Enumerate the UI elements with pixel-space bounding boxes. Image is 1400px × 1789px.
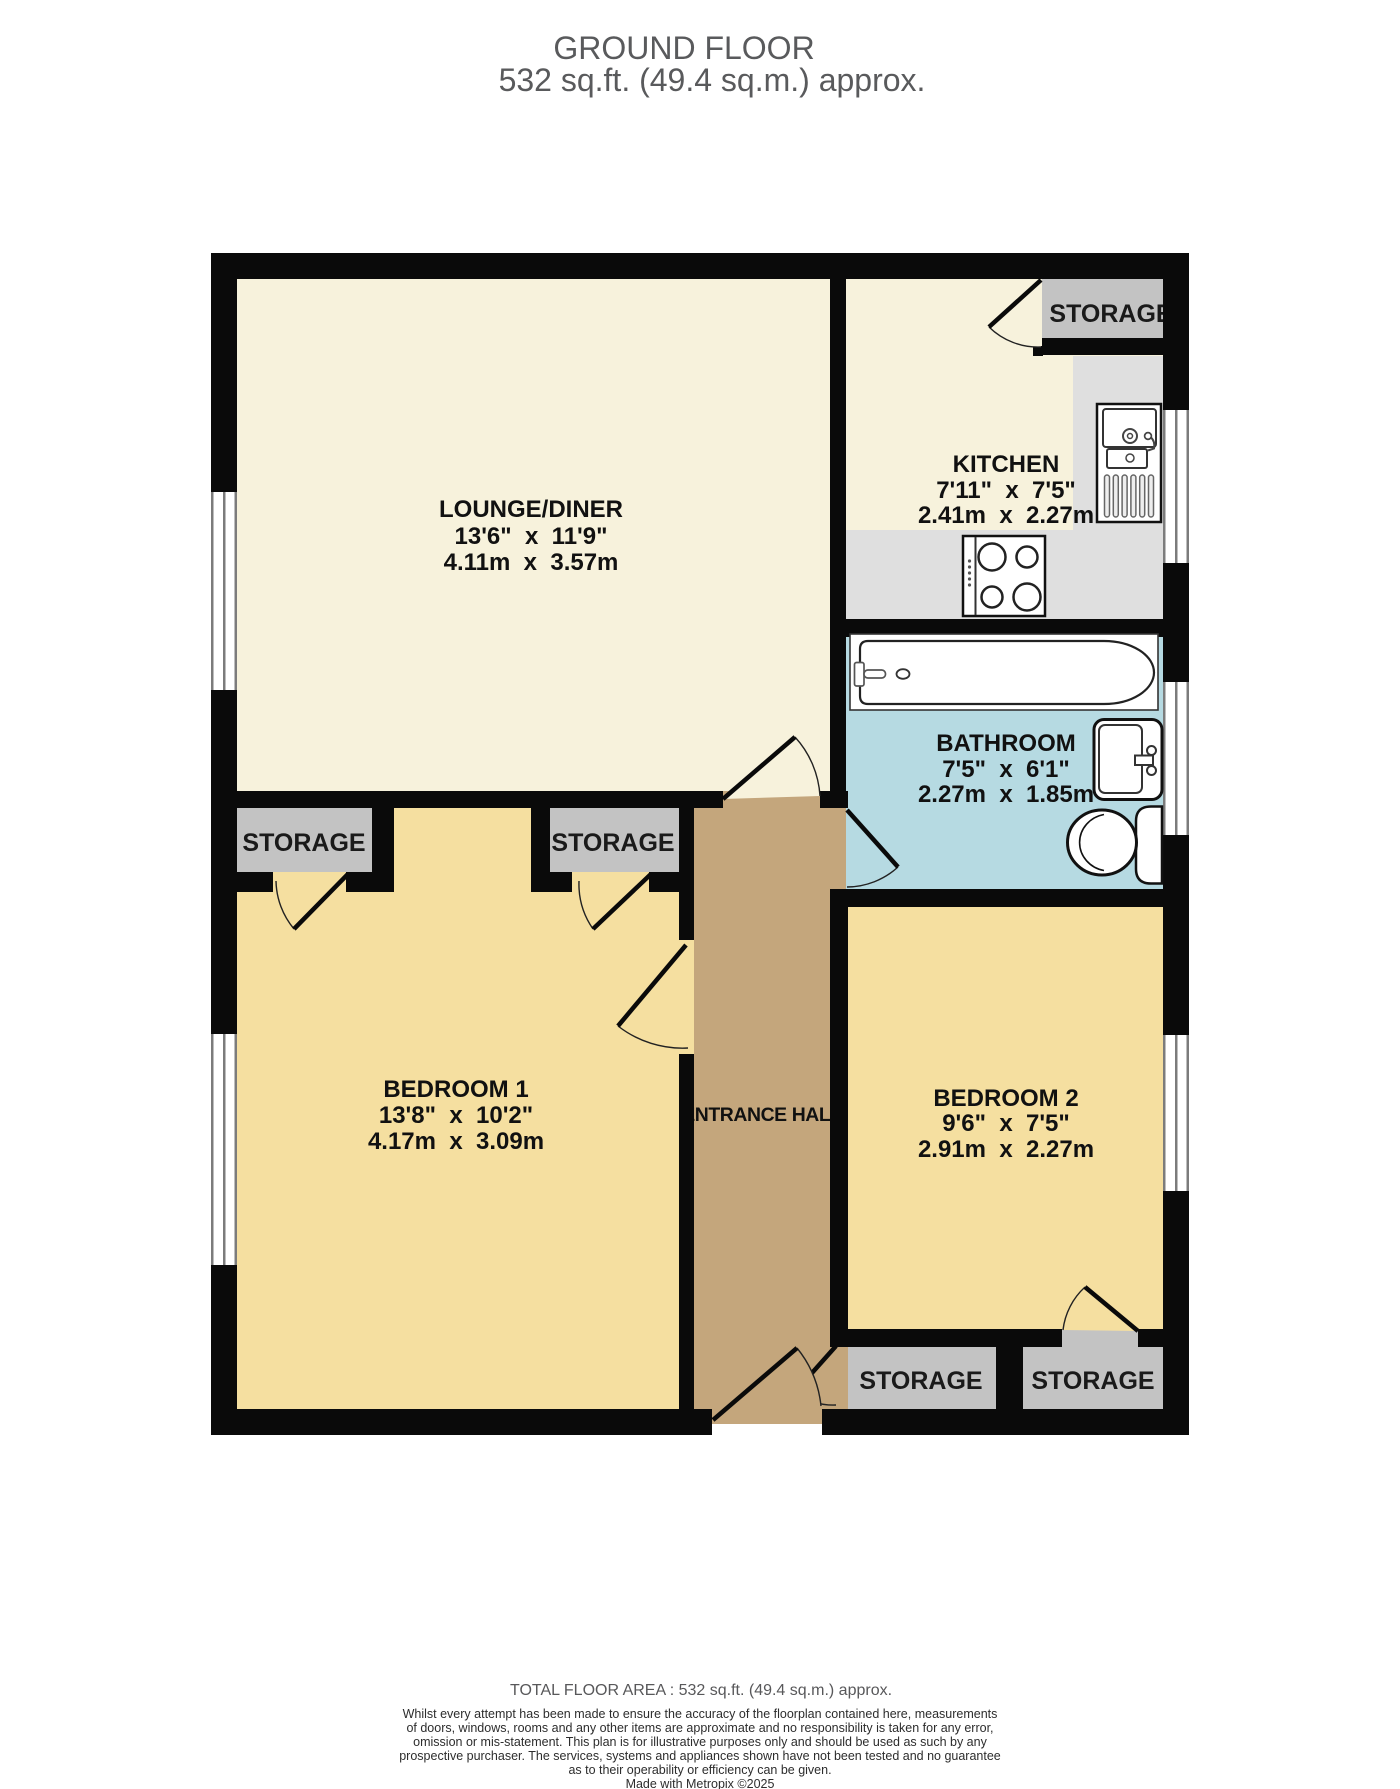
- svg-text:GROUND FLOOR: GROUND FLOOR: [553, 30, 814, 66]
- svg-text:prospective purchaser. The ser: prospective purchaser. The services, sys…: [399, 1749, 1001, 1763]
- svg-text:Made with Metropix ©2025: Made with Metropix ©2025: [626, 1777, 775, 1789]
- svg-text:omission or mis-statement. Thi: omission or mis-statement. This plan is …: [413, 1735, 987, 1749]
- svg-text:13'6" x 11'9": 13'6" x 11'9": [455, 523, 608, 550]
- svg-text:as to their operability or eff: as to their operability or efficiency ca…: [568, 1763, 831, 1777]
- svg-text:532 sq.ft. (49.4 sq.m.) approx: 532 sq.ft. (49.4 sq.m.) approx.: [499, 62, 926, 98]
- svg-text:4.11m x 3.57m: 4.11m x 3.57m: [444, 549, 619, 576]
- svg-text:LOUNGE/DINER: LOUNGE/DINER: [439, 496, 623, 523]
- svg-text:2.91m x 2.27m: 2.91m x 2.27m: [918, 1136, 1094, 1163]
- svg-text:BEDROOM 1: BEDROOM 1: [383, 1076, 528, 1103]
- svg-text:BEDROOM 2: BEDROOM 2: [933, 1085, 1078, 1112]
- svg-text:ENTRANCE HALL: ENTRANCE HALL: [682, 1104, 842, 1126]
- svg-text:of doors, windows, rooms and a: of doors, windows, rooms and any other i…: [406, 1721, 993, 1735]
- svg-text:2.27m x 1.85m: 2.27m x 1.85m: [918, 781, 1094, 808]
- svg-text:STORAGE: STORAGE: [551, 829, 674, 857]
- svg-text:STORAGE: STORAGE: [242, 829, 365, 857]
- svg-text:7'5" x 6'1": 7'5" x 6'1": [942, 756, 1070, 783]
- svg-text:BATHROOM: BATHROOM: [936, 730, 1076, 757]
- svg-text:STORAGE: STORAGE: [859, 1367, 982, 1395]
- svg-text:2.41m x 2.27m: 2.41m x 2.27m: [918, 502, 1094, 529]
- svg-text:Whilst every attempt has been: Whilst every attempt has been made to en…: [403, 1707, 998, 1721]
- svg-text:13'8" x 10'2": 13'8" x 10'2": [379, 1102, 533, 1129]
- svg-text:KITCHEN: KITCHEN: [953, 451, 1060, 478]
- svg-text:TOTAL FLOOR AREA : 532 sq.ft.: TOTAL FLOOR AREA : 532 sq.ft. (49.4 sq.m…: [510, 1682, 892, 1699]
- svg-text:7'11" x 7'5": 7'11" x 7'5": [936, 477, 1076, 504]
- svg-text:4.17m x 3.09m: 4.17m x 3.09m: [368, 1128, 544, 1155]
- svg-text:STORAGE: STORAGE: [1049, 300, 1172, 328]
- svg-text:9'6" x 7'5": 9'6" x 7'5": [942, 1110, 1070, 1137]
- svg-text:STORAGE: STORAGE: [1031, 1367, 1154, 1395]
